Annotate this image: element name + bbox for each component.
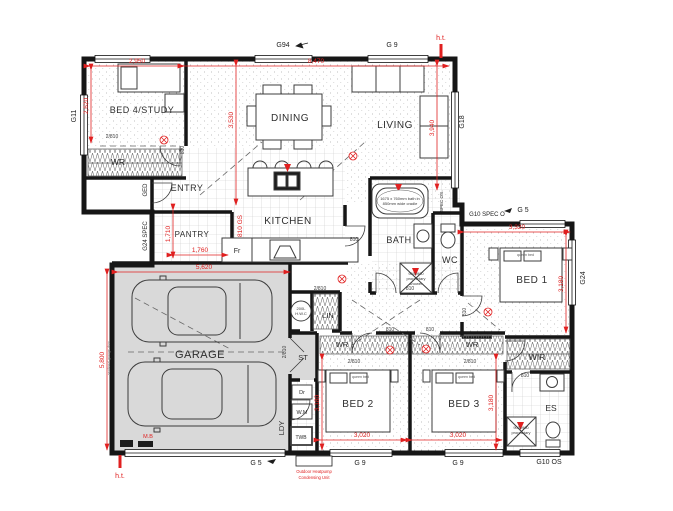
glazing-label-g24spec: G24 SPEC (143, 221, 149, 251)
heatpump-label-1: Outdoor Heatpump (296, 469, 332, 474)
ht-label-bottom: h.t. (115, 473, 125, 480)
room-label-wr-bed2: WR (336, 340, 349, 349)
dim-dining-depth: 3,530 (228, 111, 235, 128)
room-label-bed2: BED 2 (342, 399, 373, 410)
g5-arrow-icon (504, 208, 512, 213)
glazing-label-g9-top: G 9 (386, 42, 397, 49)
fixture-label-dryer: Dr (299, 390, 305, 396)
room-label-bed1: BED 1 (516, 275, 547, 286)
es-toilet (546, 422, 560, 447)
dim-bed1-depth: 3,180 (558, 275, 565, 292)
door-label-es: 810 (521, 373, 530, 379)
dim-bed2-depth: 3,180 (314, 394, 321, 411)
fixture-label-fridge: Fr (234, 248, 241, 255)
dim-main-width: 8,470 (308, 58, 325, 65)
es-basin (547, 377, 558, 388)
dim-bed1-width: 3,320 (509, 224, 526, 231)
room-label-lin: LIN (322, 311, 334, 320)
g94-arrow-icon (296, 43, 308, 48)
meter-board-box-1 (120, 440, 133, 447)
glazing-label-g5-right: G 5 (517, 207, 528, 214)
fixture-label-hwc2: H.W.C (295, 311, 307, 316)
glazing-label-g10speco: G10 SPEC O (469, 212, 505, 218)
room-label-es: ES (545, 403, 557, 413)
door-label-st: 2/810 (282, 346, 288, 359)
bath-note-2: 850mm wide cradle (383, 201, 418, 206)
kitchen-bench (222, 238, 358, 262)
dim-bed4-width: 2,950 (129, 58, 146, 65)
bed2-queen-tag: queen bed (352, 375, 369, 379)
room-label-wr-bed3: WR (466, 340, 479, 349)
glazing-label-g9-b2: G 9 (452, 460, 463, 467)
glazing-label-g9-b1: G 9 (354, 460, 365, 467)
room-label-living: LIVING (377, 120, 413, 131)
wc-toilet (441, 224, 455, 248)
room-label-ldy: LDY (277, 421, 286, 436)
dim-bed3-depth: 3,180 (488, 394, 495, 411)
glazing-label-g5-bottom: G 5 (250, 460, 261, 467)
room-label-bed3: BED 3 (448, 399, 479, 410)
glazing-label-g11: G11 (71, 110, 78, 123)
room-label-kitchen: KITCHEN (264, 216, 311, 227)
ht-label-top: h.t. (436, 35, 446, 42)
dim-bed2-width: 3,020 (354, 432, 371, 439)
glazing-label-g24: G24 (580, 271, 587, 284)
door-label-wr2: 2/810 (348, 359, 361, 365)
door-label-bath: 810 (406, 286, 415, 292)
door-label-bed3: 810 (426, 327, 435, 333)
dim-garage-width: 5,620 (196, 264, 213, 271)
garage-door-note: sectional garage door (107, 340, 111, 374)
bed3-queen-tag: queen bed (458, 375, 475, 379)
glazing-label-ged: GED (143, 183, 149, 197)
fixture-label-wm: W.M (297, 410, 308, 416)
door-label-bed1: 810 (462, 308, 468, 317)
room-label-entry: ENTRY (171, 183, 204, 193)
mb-label: M.B (143, 434, 153, 440)
door-label-wr3: 2/810 (464, 359, 477, 365)
g5-bottom-arrow-icon (267, 459, 276, 464)
door-label-810gs: 810 GS (237, 214, 244, 237)
room-label-st: ST (298, 353, 308, 362)
door-label-entry: 810 (180, 146, 186, 155)
room-label-bath: BATH (386, 235, 411, 245)
room-label-garage: GARAGE (175, 349, 225, 361)
bath-basin (417, 230, 429, 242)
heatpump-label-2: Condensing Unit (299, 475, 331, 480)
dim-pantry-width: 1,760 (192, 247, 209, 254)
heatpump-unit (296, 456, 332, 466)
door-label-lin: 2/810 (314, 286, 327, 292)
meter-board-box-2 (138, 441, 153, 447)
shower-note-3: shower (410, 281, 424, 286)
glazing-label-g10os: G10 OS (536, 459, 562, 466)
es-shower-note-2: proprietary (511, 430, 530, 435)
glazing-label-g94: G94 (276, 42, 289, 49)
room-label-bed4: BED 4/STUDY (110, 105, 175, 115)
door-label-wr4: 2/810 (106, 134, 119, 140)
room-label-dining: DINING (271, 113, 309, 124)
dim-bed4-depth: 2,620 (83, 97, 90, 114)
glazing-label-g18: G18 (459, 115, 466, 128)
room-label-wir: WIR (529, 352, 546, 362)
door-label-kitchen-hall: 810 (350, 237, 359, 243)
door-label-bed2: 810 (386, 327, 395, 333)
floor-plan-drawing: 2,950 8,470 2,620 3,530 3,940 1,710 1,76… (0, 0, 673, 511)
room-label-pantry: PANTRY (175, 230, 210, 239)
glazing-label-specos: SPEC OS (439, 192, 444, 212)
bed1-queen-tag: queen bed (517, 253, 534, 257)
dim-living-depth: 3,940 (429, 119, 436, 136)
room-label-wc: WC (442, 255, 458, 265)
dim-pantry-depth: 1,710 (165, 225, 172, 242)
floor-plan-canvas: 2,950 8,470 2,620 3,530 3,940 1,710 1,76… (0, 0, 673, 511)
dim-bed3-width: 3,020 (450, 432, 467, 439)
fixture-label-twb: TWB (295, 435, 307, 441)
dim-garage-depth: 5,800 (99, 351, 106, 368)
room-label-wr-bed4: WR (111, 157, 125, 167)
